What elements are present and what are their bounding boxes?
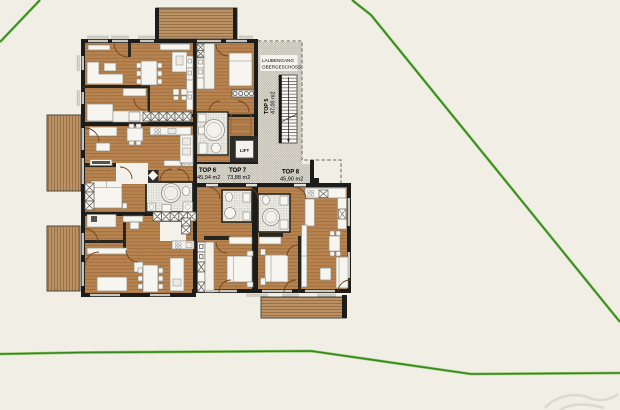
svg-text:45,90 m2: 45,90 m2 (280, 177, 303, 183)
svg-text:OBERGESCHOSS: OBERGESCHOSS (262, 65, 301, 70)
svg-text:LAUBENGANG: LAUBENGANG (262, 58, 294, 63)
svg-text:LIFT: LIFT (240, 148, 250, 153)
svg-text:73,88 m2: 73,88 m2 (227, 175, 250, 181)
svg-text:45,94 m2: 45,94 m2 (197, 175, 220, 181)
svg-text:47,00 m2: 47,00 m2 (271, 92, 277, 114)
svg-text:TOP 8: TOP 8 (282, 170, 300, 176)
svg-text:TOP 6: TOP 6 (199, 168, 217, 174)
svg-text:TOP 5: TOP 5 (264, 99, 270, 114)
svg-text:TOP 7: TOP 7 (229, 168, 247, 174)
